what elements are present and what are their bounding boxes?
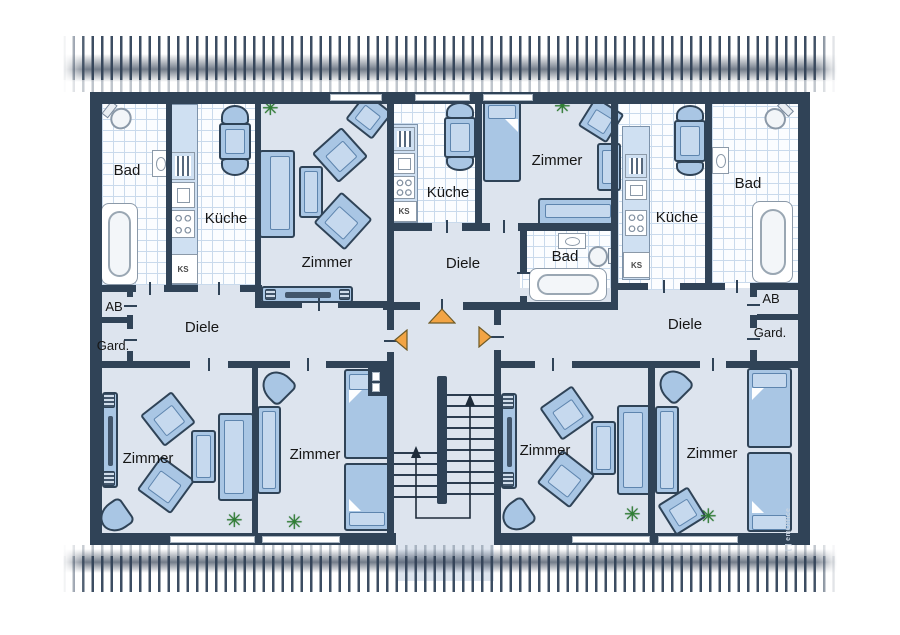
stair-walk-line (408, 390, 478, 526)
wall-segment (255, 104, 261, 308)
stove (171, 210, 195, 238)
chair-seat (325, 140, 358, 172)
room-label-kueche-mid: Küche (418, 184, 478, 201)
fridge-label: KS (177, 265, 188, 274)
wardrobe (257, 406, 281, 494)
bed-fold (349, 499, 361, 511)
wall-segment (255, 301, 302, 308)
plant-icon: ✳ (286, 512, 303, 532)
bed (344, 463, 390, 531)
door-tick (218, 282, 220, 295)
wall-segment (572, 361, 700, 368)
room-label-zimmer-bl: Zimmer (113, 450, 183, 467)
bathtub-basin (537, 274, 599, 295)
door-tick (491, 336, 504, 338)
sink-basin (398, 158, 411, 170)
wall-segment (252, 368, 258, 533)
fridge: KS (623, 252, 650, 278)
wall-segment (494, 302, 501, 325)
speaker (103, 471, 115, 486)
wall-segment (494, 361, 535, 368)
room-label-zimmer-top-left: Zimmer (292, 254, 362, 271)
shaft-opening (372, 383, 380, 392)
coffee-table (299, 166, 323, 218)
coffee-table (591, 421, 616, 475)
wall-segment (750, 350, 757, 361)
bed-fold (752, 388, 764, 400)
door-tick (318, 298, 320, 311)
kitchen-table (219, 123, 251, 160)
bathtub-basin (108, 211, 131, 277)
roof-shadow-bottom (63, 549, 837, 573)
table-top (680, 126, 700, 156)
door-tick (517, 272, 530, 274)
wall-segment (326, 361, 394, 368)
wall-segment (680, 283, 725, 290)
wall-segment (383, 302, 420, 310)
table-top (225, 129, 245, 154)
wall-segment (164, 285, 198, 292)
coffee-table (191, 430, 216, 483)
room-label-kueche-right: Küche (647, 209, 707, 226)
wall-segment (102, 317, 127, 323)
door-tick (736, 280, 738, 293)
wall-segment (463, 302, 618, 310)
room-label-zimmer-mid: Zimmer (522, 152, 592, 169)
room-label-diele-left: Diele (172, 319, 232, 336)
bed (483, 100, 521, 182)
sink-basin (630, 185, 643, 196)
bed (747, 368, 792, 448)
wall-segment (228, 361, 290, 368)
kitchen-table (674, 120, 706, 162)
sofa (259, 150, 295, 238)
kitchen-chair (221, 105, 249, 125)
wall-segment (648, 368, 655, 533)
wall-segment (494, 350, 501, 361)
room-label-ab-left: AB (99, 299, 129, 314)
plant-icon: ✳ (624, 504, 641, 524)
window (170, 536, 255, 543)
wall-segment (705, 104, 712, 283)
plant-icon: ✳ (700, 506, 717, 526)
wardrobe-front (262, 411, 276, 489)
window (483, 94, 533, 101)
bed-pillow (349, 512, 385, 526)
entrance-arrow-right (478, 326, 492, 348)
kitchen-vent (171, 152, 195, 180)
wall-segment (520, 231, 527, 272)
wall-segment (518, 223, 618, 231)
room-label-diele-right: Diele (655, 316, 715, 333)
door-tick (663, 280, 665, 293)
room-label-gard-right: Gard. (750, 325, 790, 340)
kitchen-vent (393, 127, 415, 151)
sofa-seat (224, 420, 244, 494)
bathtub (529, 268, 607, 301)
roof-shadow-top (63, 54, 837, 82)
door-tick (307, 358, 309, 371)
kitchen-sink (171, 182, 195, 208)
sofa-seat (270, 156, 290, 230)
fridge-label: KS (398, 207, 409, 216)
chair-seat (668, 498, 697, 527)
door-tick (446, 220, 448, 233)
bathtub-basin (760, 209, 786, 275)
door-tick (208, 358, 210, 371)
table-top (596, 426, 611, 470)
sofa-seat (623, 412, 643, 488)
sofa-seat (545, 204, 611, 218)
shaft-opening (372, 372, 380, 381)
wall-segment (475, 104, 482, 231)
bed-pillow (752, 373, 787, 388)
sink (558, 233, 586, 249)
wall-segment (494, 368, 501, 533)
wall-segment (102, 285, 136, 292)
sink-basin (177, 188, 190, 203)
door-tick (552, 358, 554, 371)
sofa (218, 413, 254, 501)
wall-segment (387, 223, 432, 231)
wall-segment (757, 314, 798, 320)
stove (625, 210, 647, 236)
speaker (339, 289, 350, 300)
wall-segment (611, 104, 618, 310)
chair-seat (587, 109, 613, 135)
sink (712, 147, 729, 174)
chair-seat (324, 206, 359, 240)
table-top (304, 171, 318, 213)
kitchen-table (444, 117, 476, 158)
kitchen-sink (625, 180, 647, 200)
room-label-zimmer-bl2: Zimmer (280, 446, 350, 463)
room-label-bad-left: Bad (97, 162, 157, 179)
chair-seat (147, 470, 182, 504)
table-top (196, 435, 211, 478)
sink-basin (156, 157, 166, 171)
bed-pillow (488, 105, 516, 119)
wall-segment (127, 315, 133, 329)
outer-wall-left (90, 92, 102, 545)
wall-segment (618, 283, 648, 290)
watermark-logo: [ ] emOffice (785, 496, 798, 562)
stove (393, 176, 415, 199)
fridge-label: KS (631, 261, 642, 270)
chair-seat (547, 464, 582, 498)
wardrobe (655, 406, 679, 494)
wall-segment (750, 283, 798, 290)
sink-basin (716, 154, 726, 168)
entrance-arrow-left (394, 329, 408, 351)
room-label-zimmer-br2: Zimmer (510, 442, 580, 459)
outer-wall-right (798, 92, 810, 545)
door-tick (712, 358, 714, 371)
fridge: KS (391, 201, 417, 222)
bathtub (101, 203, 138, 285)
bed-fold (505, 119, 518, 132)
sideboard-front (285, 292, 331, 298)
floor-plan: KS ✳ KS ✳ (0, 0, 900, 635)
speaker (502, 472, 514, 487)
room-label-bad-right: Bad (728, 175, 768, 192)
kitchen-vent (625, 154, 647, 178)
wall-segment (726, 361, 798, 368)
sink-basin (565, 237, 580, 246)
room-label-kueche-left: Küche (196, 210, 256, 227)
outer-wall-bottom (494, 533, 810, 545)
door-tick (503, 220, 505, 233)
toilet-bowl (588, 246, 608, 267)
bathtub (752, 201, 793, 283)
wardrobe-front (660, 411, 674, 489)
wall-segment (166, 104, 172, 285)
wall-segment (387, 104, 394, 330)
chair-seat (354, 104, 381, 130)
window (658, 536, 738, 543)
bed-fold (349, 390, 362, 403)
speaker (265, 289, 276, 300)
window (262, 536, 340, 543)
door-tick (149, 282, 151, 295)
wall-segment (102, 361, 190, 368)
chair-seat (552, 399, 584, 431)
room-label-zimmer-br: Zimmer (677, 445, 747, 462)
bed-fold (752, 501, 764, 513)
speaker (502, 394, 514, 409)
plant-icon: ✳ (226, 510, 243, 530)
room-label-bad-mid: Bad (545, 248, 585, 265)
fridge: KS (168, 254, 198, 284)
chair-seat (153, 405, 185, 437)
speaker (103, 393, 115, 408)
room-label-gard-left: Gard. (94, 338, 132, 353)
window (415, 94, 470, 101)
wall-segment (240, 285, 262, 292)
window (572, 536, 650, 543)
window (330, 94, 382, 101)
room-label-ab-right: AB (756, 291, 786, 306)
entrance-arrow-up (428, 308, 456, 324)
table-top (450, 123, 470, 152)
room-label-diele-mid: Diele (433, 255, 493, 272)
bed-pillow (752, 515, 787, 530)
kitchen-sink (393, 153, 415, 174)
